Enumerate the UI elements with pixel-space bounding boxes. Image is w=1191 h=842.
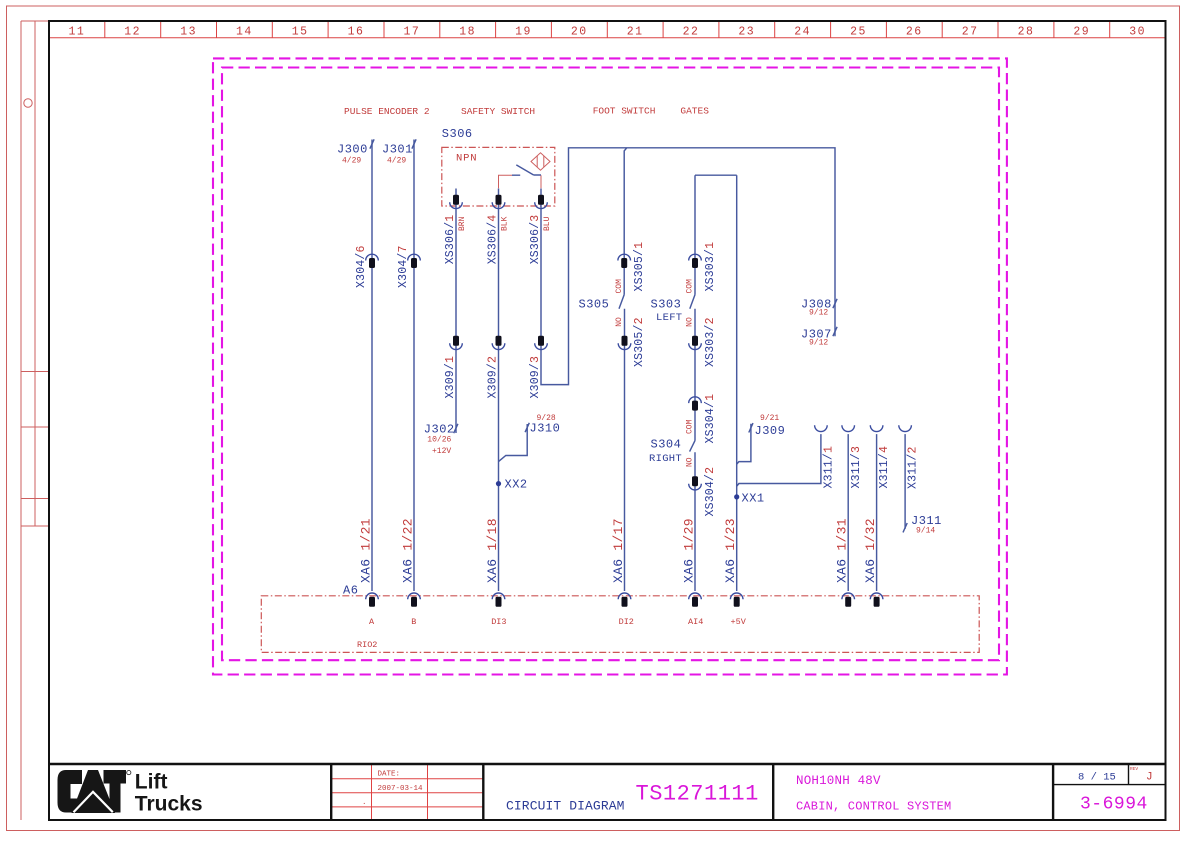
svg-text:Lift: Lift	[135, 770, 168, 793]
svg-text:30: 30	[1129, 26, 1146, 39]
svg-text:26: 26	[906, 26, 923, 39]
svg-text:9/12: 9/12	[809, 309, 828, 318]
svg-text:RIGHT: RIGHT	[649, 453, 682, 465]
svg-text:XS304/1: XS304/1	[704, 394, 717, 444]
svg-text:COM: COM	[615, 279, 624, 294]
svg-text:Trucks: Trucks	[135, 793, 203, 816]
svg-text:X304/6: X304/6	[355, 245, 368, 288]
svg-text:BLK: BLK	[500, 216, 509, 231]
svg-text:SAFETY SWITCH: SAFETY SWITCH	[461, 106, 535, 117]
svg-text:COM: COM	[686, 419, 695, 434]
svg-text:J301: J301	[382, 143, 413, 157]
svg-text:XS303/1: XS303/1	[704, 242, 717, 292]
svg-text:DI2: DI2	[619, 617, 634, 627]
svg-text:9/14: 9/14	[916, 527, 935, 536]
svg-text:RIO2: RIO2	[357, 640, 377, 650]
svg-text:9/21: 9/21	[760, 414, 779, 423]
svg-text:XX2: XX2	[505, 478, 528, 492]
svg-text:XS306/3: XS306/3	[529, 215, 542, 265]
svg-text:GATES: GATES	[680, 106, 709, 117]
svg-text:3-6994: 3-6994	[1080, 795, 1148, 815]
svg-text:NO: NO	[686, 457, 695, 467]
svg-text:BLU: BLU	[543, 216, 552, 231]
svg-text:XA6 1/17: XA6 1/17	[611, 518, 626, 583]
svg-text:NO: NO	[686, 317, 695, 327]
svg-text:24: 24	[794, 26, 811, 39]
svg-text:X304/7: X304/7	[397, 245, 410, 288]
svg-text:XS306/1: XS306/1	[444, 215, 457, 265]
svg-text:XS305/1: XS305/1	[633, 242, 646, 292]
svg-text:XA6 1/31: XA6 1/31	[835, 518, 850, 583]
svg-text:S305: S305	[579, 297, 610, 311]
svg-text:X309/1: X309/1	[444, 356, 457, 399]
svg-text:25: 25	[850, 26, 867, 39]
svg-text:X309/2: X309/2	[486, 356, 499, 399]
svg-text:AI4: AI4	[688, 617, 703, 627]
svg-text:NO: NO	[615, 317, 624, 327]
svg-text:XA6 1/23: XA6 1/23	[723, 518, 738, 583]
svg-text:S306: S306	[442, 127, 473, 141]
svg-text:27: 27	[962, 26, 979, 39]
svg-text:TS1271111: TS1271111	[636, 782, 759, 807]
svg-text:J: J	[1146, 772, 1153, 784]
svg-text:.: .	[362, 799, 367, 807]
svg-text:2007-03-14: 2007-03-14	[378, 785, 424, 793]
svg-text:PULSE ENCODER 2: PULSE ENCODER 2	[344, 106, 430, 117]
svg-text:DI3: DI3	[491, 617, 506, 627]
svg-text:REV: REV	[1130, 766, 1138, 772]
svg-text:S304: S304	[651, 438, 682, 452]
svg-text:XS303/2: XS303/2	[704, 317, 717, 367]
svg-text:XS304/2: XS304/2	[704, 467, 717, 517]
svg-text:9/12: 9/12	[809, 338, 828, 347]
svg-text:X311/4: X311/4	[878, 446, 891, 489]
svg-text:14: 14	[236, 26, 253, 39]
svg-text:4/29: 4/29	[387, 156, 406, 165]
svg-text:13: 13	[180, 26, 197, 39]
svg-text:XA6 1/21: XA6 1/21	[359, 518, 374, 583]
svg-text:XA6 1/18: XA6 1/18	[485, 518, 500, 583]
svg-text:23: 23	[738, 26, 755, 39]
svg-text:10/26: 10/26	[427, 435, 451, 444]
svg-text:X309/3: X309/3	[529, 356, 542, 399]
svg-text:LEFT: LEFT	[656, 312, 682, 324]
svg-text:XS305/2: XS305/2	[633, 317, 646, 367]
svg-text:20: 20	[571, 26, 588, 39]
svg-text:XS306/4: XS306/4	[486, 215, 499, 265]
svg-text:X311/2: X311/2	[907, 446, 920, 489]
svg-text:18: 18	[459, 26, 476, 39]
svg-text:S303: S303	[651, 297, 682, 311]
svg-text:11: 11	[68, 26, 85, 39]
svg-text:X311/1: X311/1	[823, 446, 836, 489]
svg-text:16: 16	[348, 26, 365, 39]
svg-text:A: A	[369, 617, 375, 627]
svg-text:A6: A6	[343, 584, 358, 598]
svg-text:9/28: 9/28	[537, 414, 556, 423]
svg-text:4/29: 4/29	[342, 156, 361, 165]
svg-text:COM: COM	[686, 279, 695, 294]
svg-text:17: 17	[403, 26, 420, 39]
svg-text:CABIN, CONTROL SYSTEM: CABIN, CONTROL SYSTEM	[796, 800, 951, 814]
svg-text:+5V: +5V	[731, 617, 747, 627]
svg-text:19: 19	[515, 26, 532, 39]
svg-text:XA6 1/32: XA6 1/32	[863, 518, 878, 583]
svg-text:8 / 15: 8 / 15	[1078, 771, 1116, 783]
svg-text:BRN: BRN	[458, 216, 467, 231]
svg-text:29: 29	[1073, 26, 1090, 39]
svg-text:28: 28	[1018, 26, 1035, 39]
svg-text:NOH10NH 48V: NOH10NH 48V	[796, 774, 881, 788]
svg-text:+12V: +12V	[432, 447, 451, 456]
svg-text:15: 15	[292, 26, 309, 39]
svg-text:J300: J300	[337, 143, 368, 157]
svg-text:22: 22	[683, 26, 700, 39]
svg-text:21: 21	[627, 26, 644, 39]
svg-text:B: B	[411, 617, 416, 627]
svg-text:12: 12	[124, 26, 141, 39]
svg-text:J310: J310	[530, 422, 561, 436]
svg-text:CIRCUIT DIAGRAM: CIRCUIT DIAGRAM	[506, 799, 625, 814]
svg-text:XA6 1/29: XA6 1/29	[682, 518, 697, 583]
svg-text:XX1: XX1	[742, 492, 765, 506]
svg-text:FOOT SWITCH: FOOT SWITCH	[593, 106, 656, 117]
svg-text:XA6 1/22: XA6 1/22	[401, 518, 416, 583]
svg-text:DATE:: DATE:	[378, 771, 401, 779]
svg-text:X311/3: X311/3	[850, 446, 863, 489]
svg-text:NPN: NPN	[456, 153, 477, 165]
svg-text:J309: J309	[755, 424, 786, 438]
